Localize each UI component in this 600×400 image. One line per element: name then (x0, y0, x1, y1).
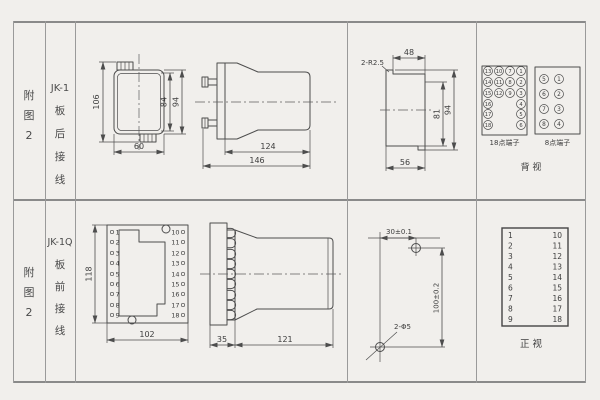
terminal-number: 14 (552, 273, 562, 282)
wiring-char: 前 (45, 276, 75, 298)
terminal-dot (110, 282, 113, 285)
right-terminal-column: 10 11 12 13 14 15 16 17 18 (171, 229, 184, 320)
pin-number: 6 (519, 123, 522, 129)
pin-number: 4 (519, 102, 523, 108)
terminal-number: 14 (171, 271, 179, 279)
terminal-number: 16 (552, 294, 562, 303)
pin-number: 10 (496, 69, 503, 75)
terminal-block-18pt: 13 10 7 1 14 11 8 2 15 12 9 3 16 4 17 5 … (482, 66, 527, 147)
terminal-number: 18 (171, 312, 179, 320)
pin-number: 14 (485, 80, 492, 86)
dim-total-146: 146 (203, 129, 310, 169)
terminal-number: 5 (508, 273, 513, 282)
dim-height-118: 118 (85, 225, 108, 323)
view-label-rear: 背 视 (521, 161, 542, 173)
table-right-column: 10 11 12 13 14 15 16 17 18 (552, 231, 562, 324)
terminal-number: 18 (552, 315, 562, 324)
top-terminal-screw (202, 77, 217, 87)
dim-text: 146 (249, 156, 264, 165)
terminal-number: 7 (116, 291, 120, 299)
pin-number: 2 (519, 80, 522, 86)
wiring-char: 后 (45, 123, 75, 146)
terminal-dot (181, 303, 184, 306)
screw-terminal (227, 310, 236, 319)
hole-size-callout: 2-Φ5 (366, 323, 411, 360)
fig-char: 附 (13, 263, 45, 283)
terminal-dot (110, 303, 113, 306)
wiring-char: 线 (45, 320, 75, 342)
screw-terminal (227, 290, 236, 299)
mounting-hole (162, 225, 170, 233)
wiring-char: 线 (45, 169, 75, 192)
dim-text: 84 (160, 97, 169, 107)
pin-number: 6 (542, 92, 546, 98)
grid-col-line-4 (476, 21, 477, 383)
screw-terminal (227, 239, 236, 248)
radius-text: 2-R2.5 (361, 59, 384, 67)
pin-number: 18 (485, 123, 492, 129)
model-name: JK-1Q (45, 232, 75, 254)
drilling-plan: 30±0.1 100±0.2 2-Φ5 (352, 208, 474, 373)
grid-col-line-2 (75, 21, 76, 383)
terminal-dot (181, 251, 184, 254)
wiring-char: 接 (45, 298, 75, 320)
dim-y-100: 100±0.2 (433, 248, 443, 347)
model-label-bottom: JK-1Q 板 前 接 线 (45, 232, 75, 342)
screw-shank (208, 120, 217, 126)
terminal-number: 13 (171, 260, 179, 268)
relay-body-step-outline (119, 230, 165, 316)
dim-text: 124 (260, 142, 275, 151)
dim-text: 30±0.1 (386, 228, 412, 236)
terminal-number: 10 (171, 229, 179, 237)
terminal-number: 6 (508, 284, 513, 293)
dim-board-35: 35 (210, 320, 235, 348)
view-label-front: 正 视 (520, 338, 543, 350)
terminal-number: 15 (552, 284, 562, 293)
dim-text: 118 (85, 266, 94, 281)
terminal-number: 10 (552, 231, 562, 240)
dim-text: 94 (444, 105, 453, 115)
dim-width-102: 102 (107, 323, 188, 343)
terminal-number: 8 (116, 302, 120, 310)
dim-text: 94 (172, 97, 181, 107)
terminal-number: 12 (171, 250, 179, 258)
terminal-box-label: 18点端子 (490, 138, 520, 147)
dim-text: 35 (217, 335, 227, 344)
wiring-char: 板 (45, 100, 75, 123)
mounting-flange (217, 63, 225, 139)
pin-number: 1 (519, 69, 522, 75)
jk1-side-view: 124 146 (195, 28, 345, 196)
terminal-number: 17 (552, 305, 562, 314)
terminal-dot (110, 240, 113, 243)
pin-number: 3 (557, 107, 561, 113)
terminal-number: 9 (116, 312, 120, 320)
bottom-terminal-screw (202, 118, 217, 128)
fig-char: 图 (13, 283, 45, 303)
terminal-dot (181, 261, 184, 264)
drawing-sheet: 附 图 2 JK-1 板 后 接 线 附 图 2 JK-1Q 板 前 接 线 (0, 0, 600, 400)
terminal-dot (110, 251, 113, 254)
pin-number: 5 (542, 77, 546, 83)
relay-case-profile (227, 230, 333, 320)
wiring-char: 接 (45, 146, 75, 169)
table-left-column: 1 2 3 4 5 6 7 8 9 (508, 231, 513, 324)
dim-body-121: 121 (235, 309, 333, 348)
screw-terminal (227, 249, 236, 258)
terminal-dot (181, 313, 184, 316)
terminal-dot (181, 292, 184, 295)
terminal-number: 7 (508, 294, 513, 303)
dim-text: 56 (400, 158, 410, 167)
pin-number: 1 (557, 77, 561, 83)
dim-text: 102 (139, 330, 154, 339)
case-bottom-edge (227, 309, 329, 320)
terminal-number: 9 (508, 315, 513, 324)
terminal-number: 6 (116, 281, 120, 289)
terminal-number: 17 (171, 302, 179, 310)
screw-shank (208, 79, 217, 85)
terminal-number: 13 (552, 263, 562, 272)
pin-number: 9 (508, 91, 511, 97)
fig-char: 图 (13, 106, 45, 126)
dim-text: 100±0.2 (433, 283, 441, 313)
fig-char: 2 (13, 126, 45, 146)
screw-terminal (227, 279, 236, 288)
terminal-dot (181, 230, 184, 233)
bottom-terminal-block (140, 134, 156, 142)
pin-number: 8 (542, 122, 546, 128)
screw-terminal (227, 300, 236, 309)
pin-number: 17 (485, 112, 492, 118)
top-terminal-block (117, 62, 133, 70)
terminal-number: 5 (116, 271, 120, 279)
case-top-edge (227, 230, 329, 238)
fig-label-top: 附 图 2 (13, 86, 45, 146)
pin-number: 13 (485, 69, 492, 75)
terminal-box-label: 8点端子 (545, 138, 570, 147)
terminal-number: 2 (116, 239, 120, 247)
fig-label-bottom: 附 图 2 (13, 263, 45, 323)
terminal-number: 12 (552, 252, 562, 261)
terminal-dot (181, 282, 184, 285)
terminal-number: 15 (171, 281, 179, 289)
hole-size-text: 2-Φ5 (394, 323, 411, 331)
terminal-number: 1 (116, 229, 120, 237)
terminal-number: 4 (116, 260, 120, 268)
terminal-dot (110, 230, 113, 233)
terminal-number: 11 (171, 239, 179, 247)
terminal-circles: 13 10 7 1 14 11 8 2 15 12 9 3 16 4 17 5 … (484, 67, 526, 130)
terminal-dot (110, 313, 113, 316)
terminal-number: 8 (508, 305, 513, 314)
model-name: JK-1 (45, 77, 75, 100)
pin-number: 15 (485, 91, 492, 97)
terminal-block-8pt: 5 1 6 2 7 3 8 4 8点端子 (535, 67, 580, 147)
pin-number: 5 (519, 112, 522, 118)
jk1q-side-view: 35 121 (198, 208, 348, 363)
terminal-number: 1 (508, 231, 513, 240)
leader-line (366, 332, 397, 360)
pin-number: 4 (557, 122, 561, 128)
case-right-edge (329, 238, 333, 309)
grid-bottom-border (13, 381, 586, 383)
terminal-circles: 5 1 6 2 7 3 8 4 (540, 75, 564, 129)
rear-terminal-layouts: 13 10 7 1 14 11 8 2 15 12 9 3 16 4 17 5 … (478, 52, 586, 182)
terminal-number: 2 (508, 242, 513, 251)
dim-text: 60 (134, 142, 144, 151)
pin-number: 3 (519, 91, 522, 97)
relay-case-profile (225, 63, 310, 139)
front-terminal-table: 1 2 3 4 5 6 7 8 9 10 11 12 13 14 15 16 1… (488, 222, 588, 357)
dim-height-106: 106 (92, 62, 139, 142)
left-terminal-column: 1 2 3 4 5 6 7 8 9 (110, 229, 119, 320)
terminal-number: 11 (552, 242, 562, 251)
terminal-number: 3 (508, 252, 513, 261)
dim-body-124: 124 (225, 130, 310, 169)
dim-text: 48 (404, 48, 414, 57)
terminal-dot (181, 240, 184, 243)
wiring-char: 板 (45, 254, 75, 276)
pin-number: 7 (542, 107, 546, 113)
pin-number: 7 (508, 69, 511, 75)
terminal-dot (181, 272, 184, 275)
pin-number: 16 (485, 102, 492, 108)
panel-cutout-view: 2-R2.5 48 81 94 56 (340, 28, 466, 196)
terminal-number: 3 (116, 250, 120, 258)
terminal-number: 16 (171, 291, 179, 299)
pin-number: 8 (508, 80, 511, 86)
dim-x-30: 30±0.1 (368, 228, 440, 238)
terminal-number: 4 (508, 263, 513, 272)
dim-text: 81 (433, 109, 442, 119)
grid-top-border (13, 21, 586, 23)
pin-number: 11 (496, 80, 503, 86)
grid-row-divider (13, 199, 586, 201)
grid-left-border (13, 21, 14, 383)
terminal-dot (110, 272, 113, 275)
fig-char: 附 (13, 86, 45, 106)
pin-number: 2 (557, 92, 561, 98)
fig-char: 2 (13, 303, 45, 323)
radius-callout: 2-R2.5 (361, 59, 389, 72)
dim-text: 121 (277, 335, 292, 344)
terminal-dot (110, 261, 113, 264)
dim-text: 106 (92, 94, 101, 109)
screw-terminal (227, 259, 236, 268)
terminal-dot (110, 292, 113, 295)
model-label-top: JK-1 板 后 接 线 (45, 77, 75, 192)
pin-number: 12 (496, 91, 503, 97)
